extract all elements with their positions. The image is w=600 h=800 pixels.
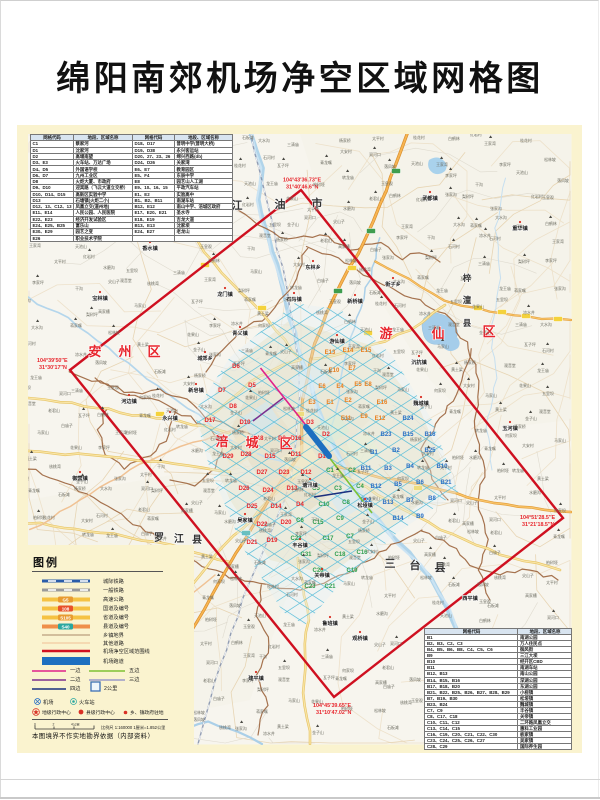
svg-text:白鹤林: 白鹤林 — [97, 412, 109, 417]
svg-text:梨树坪: 梨树坪 — [238, 288, 250, 293]
svg-text:马家山: 马家山 — [134, 303, 146, 308]
svg-text:何家坝: 何家坝 — [213, 579, 225, 584]
svg-text:双河口: 双河口 — [59, 391, 71, 396]
svg-text:五里坝: 五里坝 — [269, 222, 281, 227]
svg-text:瓦子坪: 瓦子坪 — [191, 299, 203, 304]
svg-text:东林乡: 东林乡 — [305, 263, 321, 271]
svg-text:尖山子: 尖山子 — [280, 349, 292, 354]
svg-text:B14: B14 — [392, 516, 404, 522]
svg-text:石河村: 石河村 — [28, 341, 36, 346]
svg-text:干沟: 干沟 — [516, 224, 524, 229]
svg-text:太平村: 太平村 — [140, 472, 152, 477]
svg-text:马家山: 马家山 — [437, 344, 449, 349]
svg-text:观音堂: 观音堂 — [120, 278, 132, 283]
svg-text:五里坝: 五里坝 — [496, 297, 508, 302]
svg-text:干沟: 干沟 — [475, 182, 483, 187]
svg-text:白鹤林: 白鹤林 — [344, 319, 356, 324]
svg-text:落凤坡: 落凤坡 — [409, 677, 421, 682]
svg-text:三清庙: 三清庙 — [428, 325, 440, 330]
svg-text:王家湾: 王家湾 — [436, 162, 448, 167]
svg-text:干沟: 干沟 — [157, 464, 165, 469]
svg-text:金子山: 金子山 — [525, 416, 537, 421]
svg-text:双河口: 双河口 — [450, 498, 462, 503]
svg-text:转龙庙: 转龙庙 — [176, 424, 188, 429]
svg-text:杨家桥: 杨家桥 — [339, 138, 351, 143]
svg-text:4公里: 4公里 — [71, 723, 80, 727]
svg-text:杨家桥: 杨家桥 — [232, 430, 244, 435]
svg-text:凉水井: 凉水井 — [155, 536, 167, 541]
svg-text:金子山: 金子山 — [76, 479, 88, 484]
svg-text:金子山: 金子山 — [230, 410, 242, 415]
svg-text:落凤坡: 落凤坡 — [557, 178, 569, 183]
svg-text:B13: B13 — [382, 500, 394, 506]
svg-text:核桃湾: 核桃湾 — [316, 310, 328, 315]
svg-text:何家坝: 何家坝 — [505, 433, 517, 438]
svg-text:天池山: 天池山 — [317, 425, 329, 430]
svg-text:B9: B9 — [416, 514, 424, 520]
svg-text:落凤坡: 落凤坡 — [193, 717, 205, 722]
svg-text:松林坡: 松林坡 — [108, 330, 120, 335]
svg-text:游: 游 — [379, 326, 392, 341]
svg-text:蒋家嘴: 蒋家嘴 — [304, 580, 316, 585]
svg-text:何家坝: 何家坝 — [28, 476, 29, 481]
svg-text:玉皇观: 玉皇观 — [243, 624, 255, 629]
svg-text:B16: B16 — [424, 432, 436, 438]
svg-text:龙王庙: 龙王庙 — [537, 368, 549, 373]
svg-text:E7: E7 — [348, 366, 356, 372]
svg-text:凉水井: 凉水井 — [419, 311, 431, 316]
svg-text:C3: C3 — [334, 486, 342, 492]
svg-text:玉皇观: 玉皇观 — [297, 479, 309, 484]
svg-text:C2: C2 — [348, 468, 356, 474]
svg-text:老君山: 老君山 — [382, 665, 394, 670]
svg-text:花果山: 花果山 — [416, 367, 428, 372]
svg-text:大水沟: 大水沟 — [31, 325, 43, 330]
svg-text:C17: C17 — [322, 536, 334, 542]
svg-text:D28: D28 — [240, 452, 252, 458]
svg-text:核桃湾: 核桃湾 — [359, 267, 371, 272]
svg-text:转龙庙: 转龙庙 — [342, 175, 354, 180]
svg-text:李家坪: 李家坪 — [295, 531, 307, 536]
svg-text:红岩村: 红岩村 — [164, 427, 176, 432]
svg-text:B2: B2 — [392, 448, 400, 454]
svg-text:观音堂: 观音堂 — [259, 233, 271, 238]
svg-text:C31: C31 — [300, 552, 312, 558]
svg-text:D15: D15 — [264, 454, 276, 460]
svg-text:白庙子: 白庙子 — [213, 696, 225, 701]
svg-text:玉皇观: 玉皇观 — [200, 244, 212, 249]
svg-text:瓦子坪: 瓦子坪 — [277, 163, 289, 168]
svg-text:大安村: 大安村 — [230, 445, 242, 450]
svg-text:石河村: 石河村 — [96, 513, 108, 518]
svg-text:高家槽: 高家槽 — [424, 552, 436, 557]
svg-text:李家坪: 李家坪 — [445, 173, 457, 178]
svg-text:石河村: 石河村 — [394, 303, 406, 308]
svg-text:落凤坡: 落凤坡 — [384, 164, 396, 169]
svg-text:观音堂: 观音堂 — [278, 677, 290, 682]
svg-text:D4: D4 — [296, 502, 304, 508]
svg-text:桂花村: 桂花村 — [413, 135, 425, 140]
svg-text:五里坝: 五里坝 — [450, 299, 462, 304]
svg-text:天池山: 天池山 — [254, 613, 266, 618]
svg-text:双河口: 双河口 — [304, 215, 316, 220]
svg-text:双河口: 双河口 — [206, 660, 218, 665]
svg-text:石河村: 石河村 — [210, 436, 222, 441]
svg-text:石河村: 石河村 — [542, 348, 554, 353]
svg-text:转龙庙: 转龙庙 — [361, 575, 373, 580]
svg-text:桂花村: 桂花村 — [267, 584, 279, 589]
svg-text:B5: B5 — [394, 482, 402, 488]
svg-text:五里坝: 五里坝 — [278, 665, 290, 670]
svg-text:松林坡: 松林坡 — [467, 529, 479, 534]
svg-text:大水沟: 大水沟 — [100, 486, 112, 491]
svg-text:石河村: 石河村 — [346, 451, 358, 456]
svg-text:王家湾: 王家湾 — [552, 239, 564, 244]
svg-text:桂花村: 桂花村 — [432, 600, 444, 605]
svg-text:红岩村: 红岩村 — [242, 202, 254, 207]
svg-text:白鹤林: 白鹤林 — [545, 221, 557, 226]
svg-text:蒋家嘴: 蒋家嘴 — [244, 297, 256, 302]
svg-text:新皂镇: 新皂镇 — [188, 386, 204, 394]
svg-text:王家湾: 王家湾 — [401, 224, 413, 229]
svg-text:青义镇: 青义镇 — [232, 329, 248, 337]
svg-text:D23: D23 — [278, 470, 290, 476]
svg-text:干沟: 干沟 — [75, 286, 83, 291]
svg-text:E8: E8 — [364, 382, 372, 388]
svg-text:王家湾: 王家湾 — [280, 512, 292, 517]
svg-text:青龙嘴: 青龙嘴 — [392, 494, 404, 499]
svg-text:红岩村: 红岩村 — [83, 254, 95, 259]
svg-text:台: 台 — [410, 558, 421, 572]
svg-text:B23: B23 — [380, 432, 392, 438]
svg-text:青龙嘴: 青龙嘴 — [139, 413, 151, 418]
svg-text:张家沟: 张家沟 — [445, 192, 457, 197]
svg-text:S40: S40 — [61, 624, 70, 629]
svg-text:B6: B6 — [416, 480, 424, 486]
svg-text:转龙庙: 转龙庙 — [82, 532, 94, 537]
svg-text:玉皇观: 玉皇观 — [381, 181, 393, 186]
svg-text:E12: E12 — [375, 416, 386, 422]
svg-text:王家湾: 王家湾 — [484, 141, 496, 146]
svg-text:转龙庙: 转龙庙 — [512, 468, 524, 473]
svg-text:龙王庙: 龙王庙 — [283, 622, 295, 627]
svg-text:老君山: 老君山 — [490, 530, 502, 535]
svg-text:玉皇观: 玉皇观 — [329, 299, 341, 304]
svg-text:大水沟: 大水沟 — [453, 222, 465, 227]
svg-text:柏树垭: 柏树垭 — [205, 617, 217, 622]
svg-text:石板滩: 石板滩 — [154, 369, 166, 374]
svg-text:白鹤林: 白鹤林 — [389, 193, 401, 198]
svg-text:B24: B24 — [402, 416, 414, 422]
svg-text:观音堂: 观音堂 — [504, 363, 516, 368]
svg-text:李家坪: 李家坪 — [242, 678, 254, 683]
svg-text:梨树坪: 梨树坪 — [518, 259, 530, 264]
svg-text:马家山: 马家山 — [397, 387, 409, 392]
svg-text:G5: G5 — [62, 597, 69, 602]
svg-text:落凤坡: 落凤坡 — [229, 603, 241, 608]
svg-text:龙王庙: 龙王庙 — [392, 327, 404, 332]
svg-text:凉水井: 凉水井 — [314, 627, 326, 632]
svg-text:区: 区 — [147, 344, 160, 359]
svg-text:干沟: 干沟 — [247, 246, 255, 251]
svg-text:天池山: 天池山 — [244, 181, 256, 186]
svg-text:太平村: 太平村 — [440, 465, 452, 470]
svg-text:何家坝: 何家坝 — [139, 395, 151, 400]
svg-text:吴家镇: 吴家镇 — [237, 516, 253, 524]
svg-text:瓦子坪: 瓦子坪 — [411, 350, 423, 355]
svg-text:州: 州 — [117, 344, 131, 359]
svg-text:水磨沟: 水磨沟 — [411, 500, 423, 505]
svg-text:瓦子坪: 瓦子坪 — [357, 469, 369, 474]
svg-text:大水沟: 大水沟 — [393, 279, 405, 284]
svg-text:石板滩: 石板滩 — [242, 135, 254, 140]
svg-text:何家坝: 何家坝 — [434, 388, 446, 393]
svg-text:天池山: 天池山 — [166, 408, 178, 413]
svg-text:王家湾: 王家湾 — [204, 277, 216, 282]
svg-text:何家坝: 何家坝 — [554, 508, 566, 513]
svg-text:尖山子: 尖山子 — [466, 500, 478, 505]
svg-text:核桃湾: 核桃湾 — [147, 281, 159, 286]
svg-text:青龙嘴: 青龙嘴 — [484, 446, 496, 451]
svg-text:C6: C6 — [296, 518, 304, 524]
svg-text:C18: C18 — [334, 552, 346, 558]
svg-text:108: 108 — [62, 606, 70, 611]
svg-text:龙王庙: 龙王庙 — [436, 288, 448, 293]
svg-text:金子山: 金子山 — [193, 347, 205, 352]
svg-text:金子山: 金子山 — [362, 519, 374, 524]
svg-text:天池山: 天池山 — [75, 244, 87, 249]
svg-text:白庙子: 白庙子 — [370, 247, 382, 252]
svg-text:宝林镇: 宝林镇 — [92, 294, 108, 302]
svg-text:杨家桥: 杨家桥 — [514, 424, 526, 429]
svg-text:白鹤林: 白鹤林 — [292, 487, 304, 492]
svg-text:玉皇观: 玉皇观 — [542, 195, 554, 200]
svg-text:尖山子: 尖山子 — [522, 573, 534, 578]
svg-text:柏树垭: 柏树垭 — [313, 182, 325, 187]
svg-text:花果山: 花果山 — [286, 196, 298, 201]
svg-text:红岩村: 红岩村 — [416, 197, 428, 202]
svg-text:江: 江 — [174, 532, 184, 545]
svg-text:C9: C9 — [336, 516, 344, 522]
svg-text:观音堂: 观音堂 — [382, 372, 394, 377]
svg-text:杨家桥: 杨家桥 — [464, 360, 476, 365]
svg-text:桂花村: 桂花村 — [520, 138, 532, 143]
svg-text:转龙庙: 转龙庙 — [225, 478, 237, 483]
svg-text:丰谷镇: 丰谷镇 — [292, 541, 308, 549]
svg-text:高家槽: 高家槽 — [227, 564, 239, 569]
svg-text:红岩村: 红岩村 — [372, 353, 384, 358]
svg-text:白鹤林: 白鹤林 — [479, 618, 491, 623]
svg-text:水磨沟: 水磨沟 — [343, 206, 355, 211]
svg-text:E1: E1 — [326, 400, 334, 406]
svg-text:杨家桥: 杨家桥 — [74, 486, 86, 491]
svg-text:黄土梁: 黄土梁 — [137, 342, 149, 347]
svg-text:马家山: 马家山 — [485, 393, 497, 398]
svg-text:水磨沟: 水磨沟 — [529, 490, 541, 495]
svg-text:老君山: 老君山 — [203, 678, 215, 683]
svg-text:松林坡: 松林坡 — [193, 710, 205, 715]
svg-text:尖山子: 尖山子 — [374, 642, 386, 647]
svg-text:梨树坪: 梨树坪 — [151, 488, 163, 493]
svg-text:瓦子坪: 瓦子坪 — [524, 342, 536, 347]
svg-text:尖山子: 尖山子 — [413, 538, 425, 543]
svg-text:城: 城 — [245, 435, 258, 450]
svg-text:太平村: 太平村 — [546, 580, 558, 585]
svg-text:D25: D25 — [246, 504, 258, 510]
svg-text:水磨沟: 水磨沟 — [191, 448, 203, 453]
svg-text:干沟: 干沟 — [373, 368, 381, 373]
svg-text:梨树坪: 梨树坪 — [86, 312, 98, 317]
svg-text:高家槽: 高家槽 — [525, 593, 537, 598]
svg-text:江: 江 — [232, 198, 243, 212]
svg-text:转龙庙: 转龙庙 — [290, 285, 302, 290]
svg-text:红岩村: 红岩村 — [268, 644, 280, 649]
svg-text:D21: D21 — [246, 540, 258, 546]
svg-text:桂花村: 桂花村 — [375, 301, 387, 306]
svg-text:D5: D5 — [248, 383, 256, 389]
svg-text:三清庙: 三清庙 — [515, 322, 527, 327]
svg-text:双河口: 双河口 — [547, 615, 559, 620]
svg-text:李家坪: 李家坪 — [545, 258, 557, 263]
svg-text:花果山: 花果山 — [311, 699, 323, 704]
svg-text:石河村: 石河村 — [263, 155, 275, 160]
svg-text:干沟: 干沟 — [311, 517, 319, 522]
svg-text:双河口: 双河口 — [390, 641, 402, 646]
svg-text:C21: C21 — [324, 584, 336, 590]
svg-text:瓦子坪: 瓦子坪 — [233, 361, 245, 366]
svg-text:石板滩: 石板滩 — [387, 725, 399, 730]
svg-text:桂花村: 桂花村 — [234, 163, 246, 168]
svg-text:王家湾: 王家湾 — [348, 344, 360, 349]
svg-text:B8: B8 — [428, 496, 436, 502]
svg-text:高家槽: 高家槽 — [98, 309, 110, 314]
svg-text:三清庙: 三清庙 — [287, 142, 299, 147]
svg-text:黄土梁: 黄土梁 — [257, 311, 269, 316]
svg-text:马家山: 马家山 — [37, 430, 49, 435]
svg-text:D7: D7 — [218, 388, 226, 394]
svg-text:金子山: 金子山 — [287, 222, 299, 227]
svg-text:E9: E9 — [360, 414, 368, 420]
svg-text:王家湾: 王家湾 — [243, 653, 255, 658]
svg-text:E2: E2 — [344, 398, 352, 404]
svg-text:马家山: 马家山 — [214, 510, 226, 515]
svg-text:关帝镇: 关帝镇 — [314, 571, 330, 579]
svg-text:天池山: 天池山 — [440, 613, 452, 618]
svg-text:尖山子: 尖山子 — [235, 538, 247, 543]
svg-text:松林坡: 松林坡 — [345, 258, 357, 263]
svg-text:尖山子: 尖山子 — [191, 500, 203, 505]
svg-text:大水沟: 大水沟 — [200, 404, 212, 409]
svg-text:油: 油 — [275, 197, 286, 211]
svg-text:杨家桥: 杨家桥 — [358, 528, 370, 533]
svg-text:花果山: 花果山 — [519, 383, 531, 388]
svg-text:蒋家嘴: 蒋家嘴 — [256, 709, 268, 714]
svg-text:黄土梁: 黄土梁 — [451, 367, 463, 372]
svg-text:白庙子: 白庙子 — [489, 550, 501, 555]
svg-text:三清庙: 三清庙 — [360, 448, 372, 453]
svg-text:青龙嘴: 青龙嘴 — [320, 160, 332, 165]
svg-text:梨树坪: 梨树坪 — [425, 255, 437, 260]
svg-text:B21: B21 — [440, 480, 452, 486]
svg-text:永兴镇: 永兴镇 — [161, 414, 178, 422]
svg-text:张家沟: 张家沟 — [298, 559, 310, 564]
svg-text:大安村: 大安村 — [340, 149, 352, 154]
svg-text:瓦子坪: 瓦子坪 — [460, 276, 472, 281]
svg-text:水磨沟: 水磨沟 — [103, 265, 115, 270]
svg-text:观音堂: 观音堂 — [203, 488, 215, 493]
svg-text:观音堂: 观音堂 — [448, 322, 460, 327]
svg-text:凉水井: 凉水井 — [75, 352, 87, 357]
svg-text:三清庙: 三清庙 — [241, 348, 253, 353]
svg-text:观桥镇: 观桥镇 — [352, 634, 368, 642]
svg-text:青龙嘴: 青龙嘴 — [265, 351, 277, 356]
svg-text:B3: B3 — [384, 466, 392, 472]
svg-text:落凤坡: 落凤坡 — [349, 280, 361, 285]
svg-text:D14: D14 — [270, 504, 282, 510]
svg-text:五里坝: 五里坝 — [126, 268, 138, 273]
svg-text:太平村: 太平村 — [200, 641, 212, 646]
svg-text:花果山: 花果山 — [187, 332, 199, 337]
svg-text:天池山: 天池山 — [516, 170, 528, 175]
svg-text:三清庙: 三清庙 — [71, 388, 83, 393]
svg-text:落凤坡: 落凤坡 — [284, 457, 296, 462]
svg-text:D27: D27 — [256, 470, 268, 476]
svg-text:黄土梁: 黄土梁 — [537, 476, 549, 481]
svg-text:高家槽: 高家槽 — [291, 365, 303, 370]
svg-text:柏树垭: 柏树垭 — [258, 390, 270, 395]
svg-text:老君山: 老君山 — [263, 496, 275, 501]
svg-text:花果山: 花果山 — [472, 304, 484, 309]
svg-text:金子山: 金子山 — [312, 730, 324, 735]
svg-text:五里坝: 五里坝 — [393, 349, 405, 354]
svg-text:落凤坡: 落凤坡 — [477, 582, 489, 587]
svg-text:梨树坪: 梨树坪 — [462, 194, 474, 199]
svg-text:老君山: 老君山 — [320, 238, 332, 243]
svg-text:蒋家嘴: 蒋家嘴 — [417, 275, 429, 280]
svg-text:凉水井: 凉水井 — [523, 310, 535, 315]
svg-text:104°51′28.5″E: 104°51′28.5″E — [520, 515, 556, 521]
svg-text:香水镇: 香水镇 — [142, 244, 158, 252]
svg-text:转龙庙: 转龙庙 — [475, 428, 487, 433]
svg-text:鲁班镇: 鲁班镇 — [322, 619, 338, 627]
svg-text:白庙子: 白庙子 — [264, 522, 276, 527]
svg-text:核桃湾: 核桃湾 — [438, 562, 450, 567]
svg-text:黄土梁: 黄土梁 — [201, 554, 213, 559]
svg-text:张家沟: 张家沟 — [554, 286, 566, 291]
svg-text:金子山: 金子山 — [479, 330, 491, 335]
svg-text:张家沟: 张家沟 — [209, 352, 221, 357]
svg-text:老君山: 老君山 — [138, 507, 150, 512]
svg-text:31°21′18.5″N: 31°21′18.5″N — [522, 522, 555, 528]
svg-text:D26: D26 — [238, 486, 250, 492]
svg-text:张家沟: 张家沟 — [490, 206, 502, 211]
svg-text:红岩村: 红岩村 — [304, 492, 316, 497]
svg-text:松林坡: 松林坡 — [283, 406, 295, 411]
svg-text:蒋家嘴: 蒋家嘴 — [514, 288, 526, 293]
svg-text:瓦子坪: 瓦子坪 — [323, 675, 335, 680]
svg-text:柏树垭: 柏树垭 — [546, 560, 558, 565]
svg-text:核桃湾: 核桃湾 — [259, 528, 271, 533]
svg-text:B12: B12 — [370, 484, 382, 490]
svg-text:白庙子: 白庙子 — [317, 278, 329, 283]
svg-text:31°30′17″N: 31°30′17″N — [39, 365, 67, 371]
svg-text:张家沟: 张家沟 — [382, 255, 394, 260]
svg-text:李家坪: 李家坪 — [32, 280, 44, 285]
svg-text:水磨沟: 水磨沟 — [376, 611, 388, 616]
svg-text:青龙嘴: 青龙嘴 — [28, 488, 40, 493]
svg-text:太平村: 太平村 — [372, 136, 384, 141]
svg-text:龙门镇: 龙门镇 — [216, 290, 233, 298]
